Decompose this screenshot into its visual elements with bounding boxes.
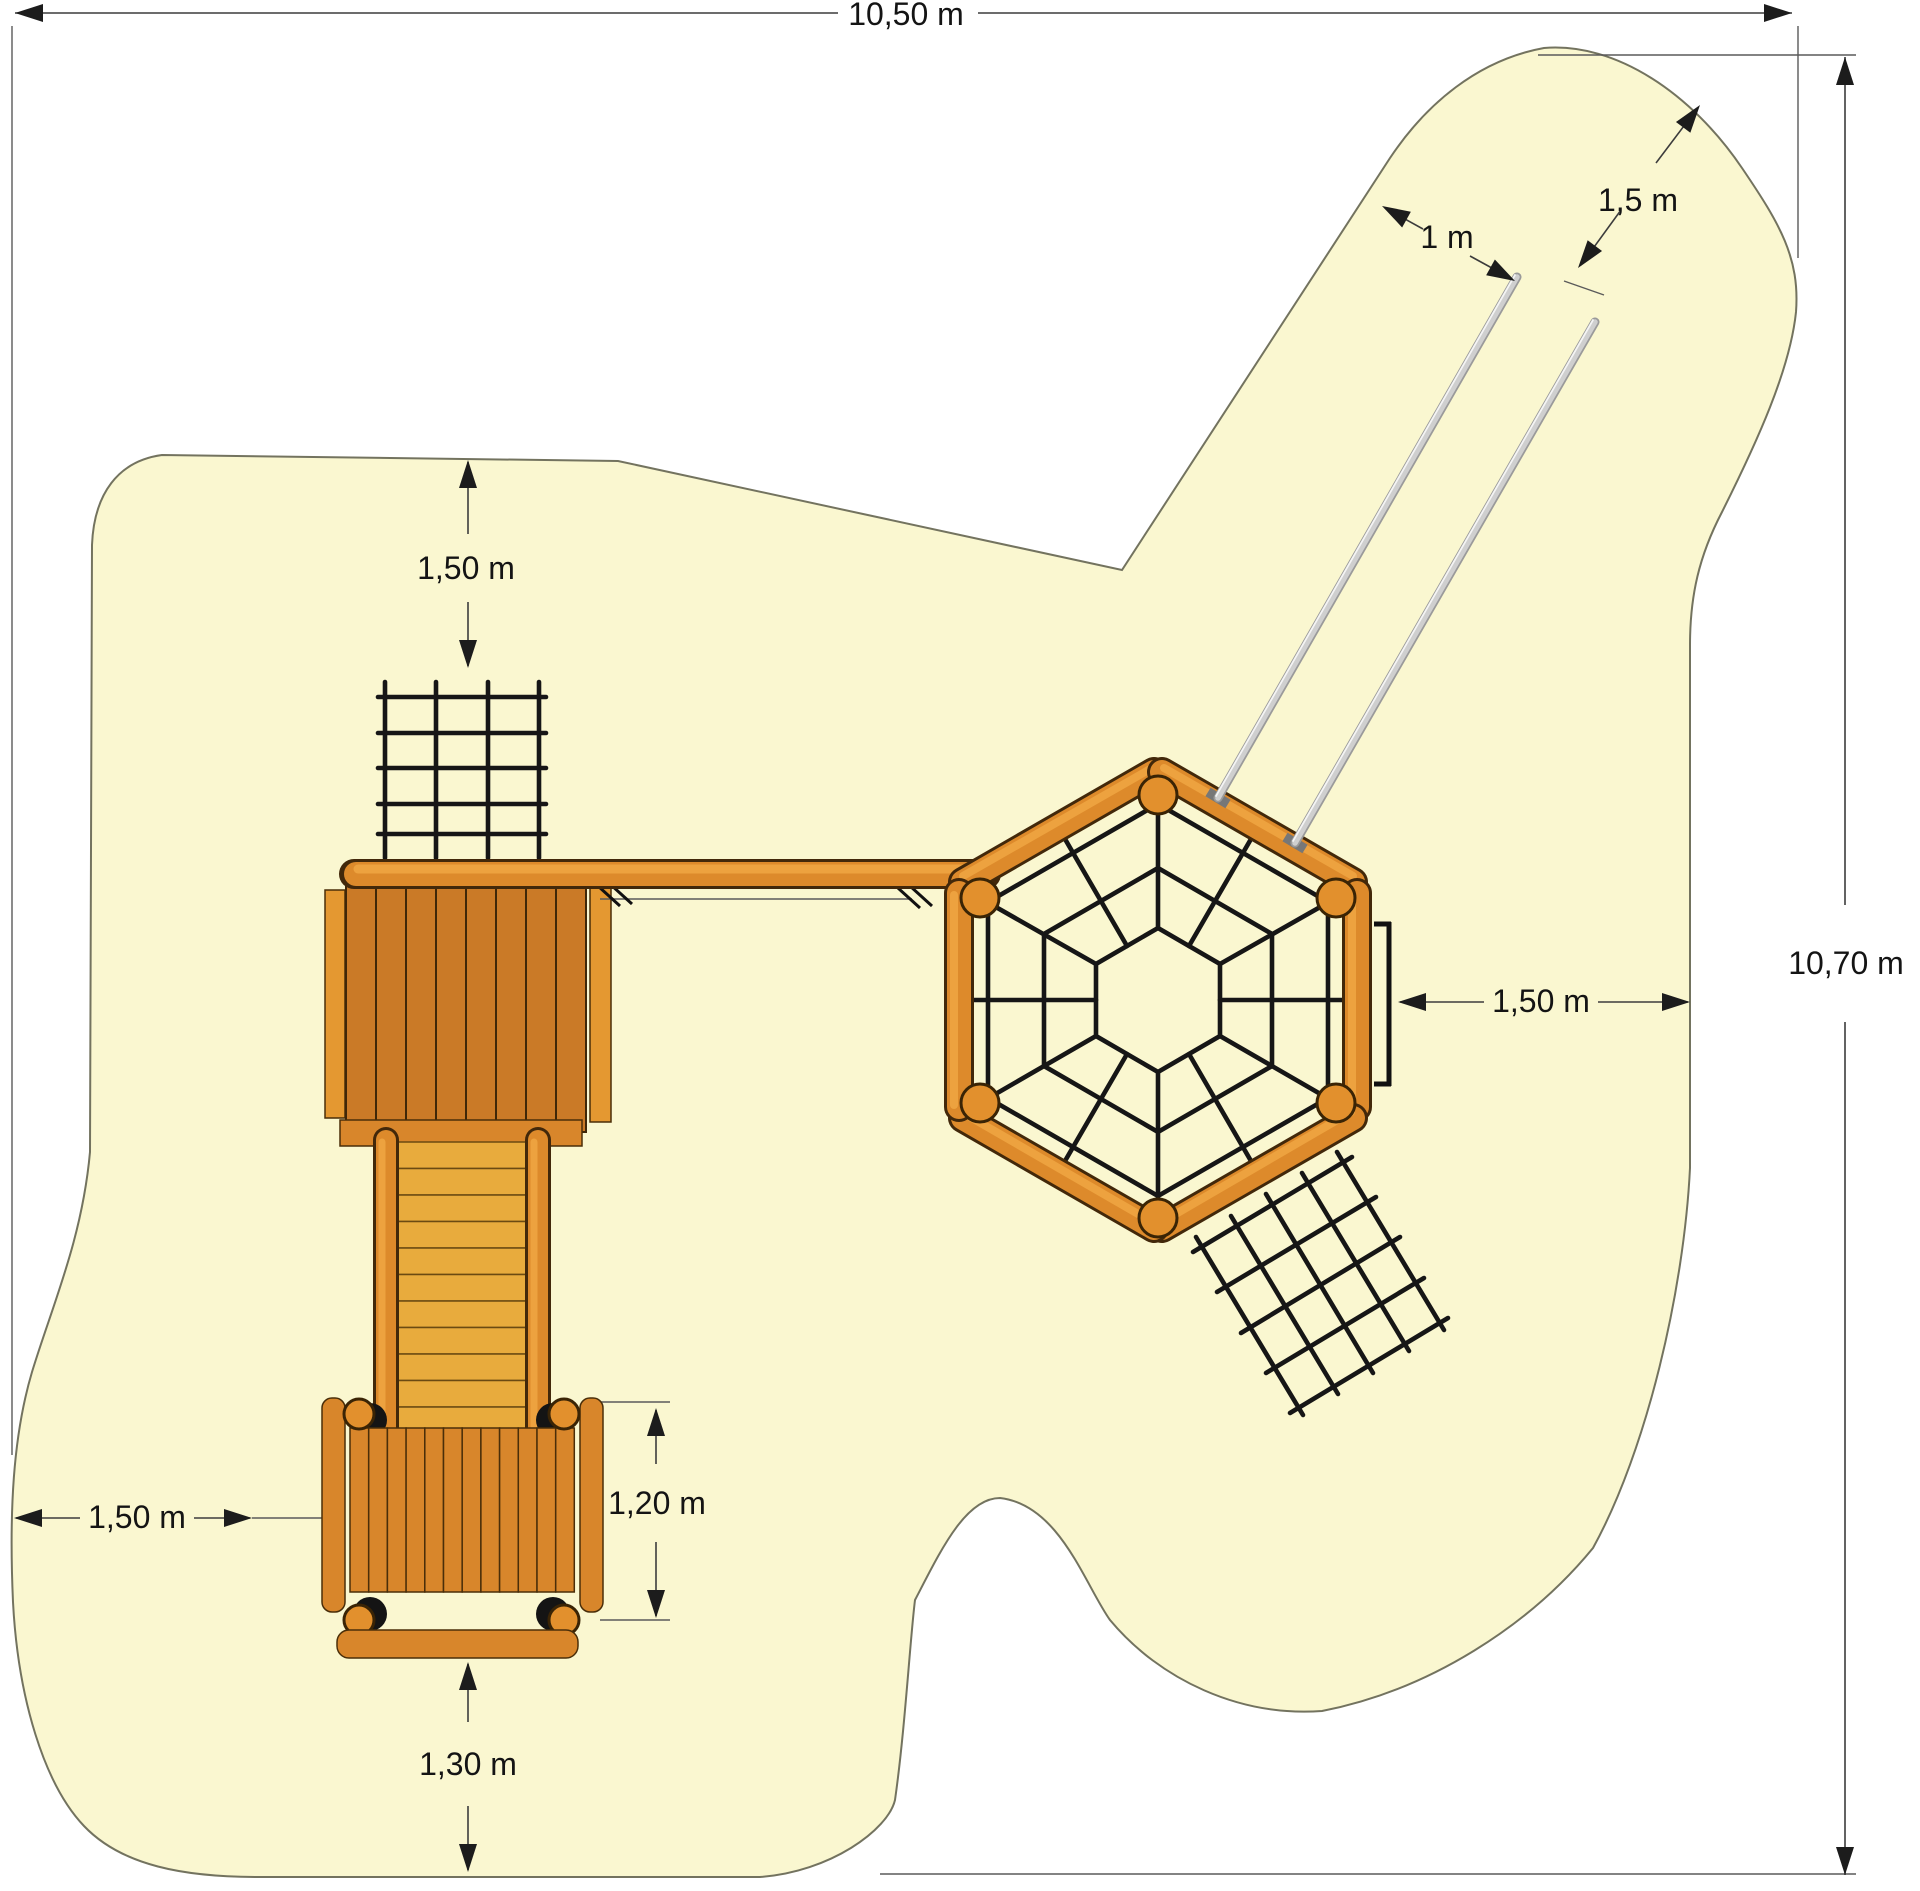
net-top-clearance-label: 1,50 m [417, 550, 515, 586]
hexagon-right-clearance-label: 1,50 m [1492, 983, 1590, 1019]
arrow-down-icon [1836, 1847, 1854, 1875]
total-width-label: 10,50 m [848, 0, 964, 32]
dimension-total-height: 10,70 m [1788, 57, 1904, 1875]
platform-width-label: 1,20 m [608, 1485, 706, 1521]
dimension-total-width: 10,50 m [15, 0, 1792, 32]
platform-corner-post [344, 1399, 374, 1429]
platform-bottom-log [337, 1630, 578, 1658]
playground-plan-page: 10,50 m 10,70 m 1,5 m 1 m 1,50 m [0, 0, 1920, 1891]
slide-exit-clearance-label: 1,5 m [1598, 182, 1678, 218]
tower-side-wall-left [325, 890, 345, 1118]
total-height-label: 10,70 m [1788, 945, 1904, 981]
arrow-left-icon [15, 4, 43, 22]
arrow-up-icon [1836, 57, 1854, 85]
slide-width-label: 1 m [1420, 219, 1473, 255]
playground-plan-drawing: 10,50 m 10,70 m 1,5 m 1 m 1,50 m [0, 0, 1920, 1891]
large-tower [325, 863, 611, 1146]
platform-deck-planks [350, 1428, 574, 1592]
tower-roof-planks [346, 863, 586, 1142]
platform-corner-post [549, 1399, 579, 1429]
tower-side-wall-right [590, 880, 611, 1122]
safety-zone-area [12, 48, 1797, 1877]
platform-side-log-left [322, 1398, 345, 1612]
platform-left-clearance-label: 1,50 m [88, 1499, 186, 1535]
platform-bottom-clearance-label: 1,30 m [419, 1746, 517, 1782]
arrow-right-icon [1764, 4, 1792, 22]
staircase [382, 1140, 538, 1434]
platform-side-log-right [580, 1398, 603, 1612]
staircase-steps [397, 1142, 527, 1434]
